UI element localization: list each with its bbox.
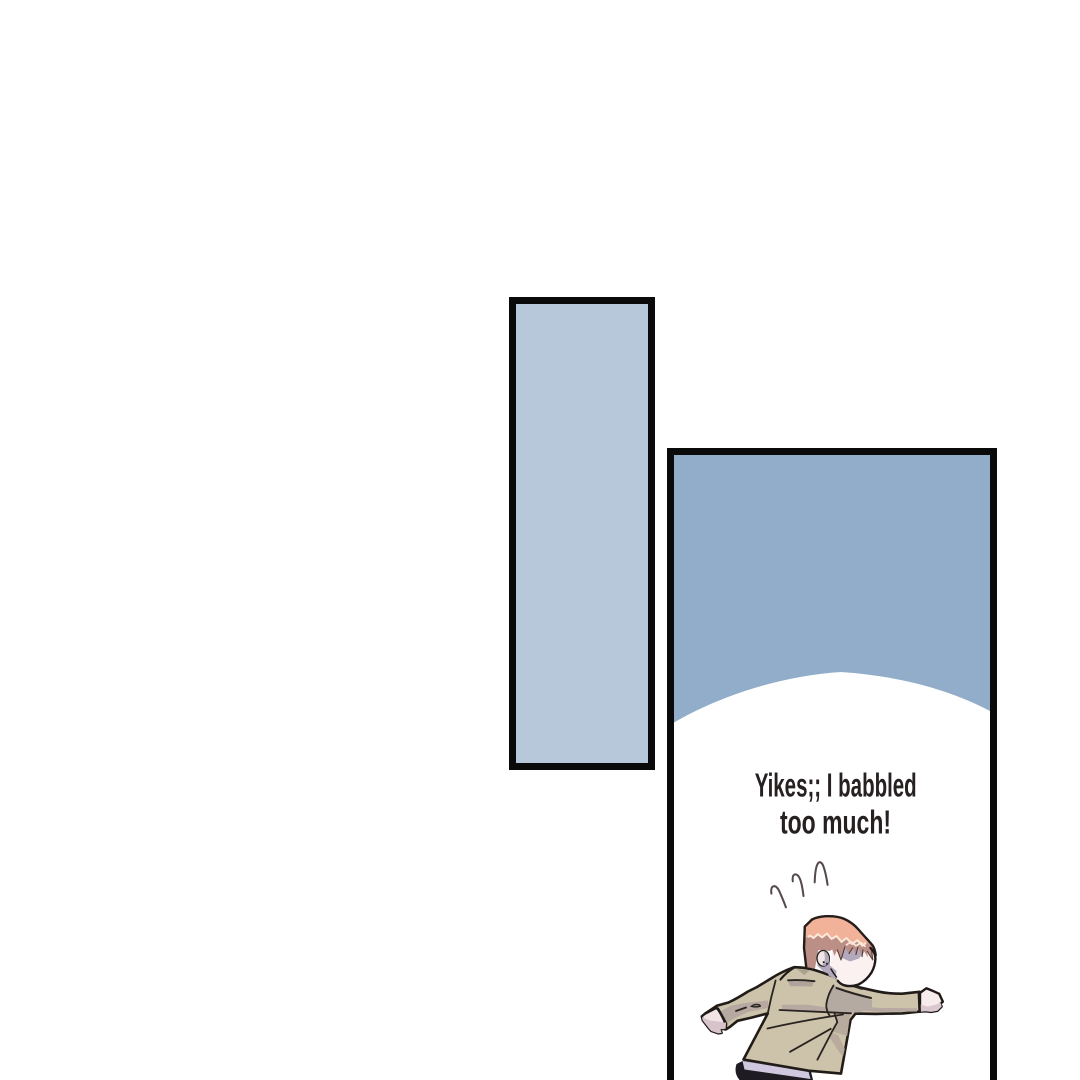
svg-text:too much!: too much! [780,804,891,841]
svg-text:Yikes;; I babbled: Yikes;; I babbled [755,767,917,804]
